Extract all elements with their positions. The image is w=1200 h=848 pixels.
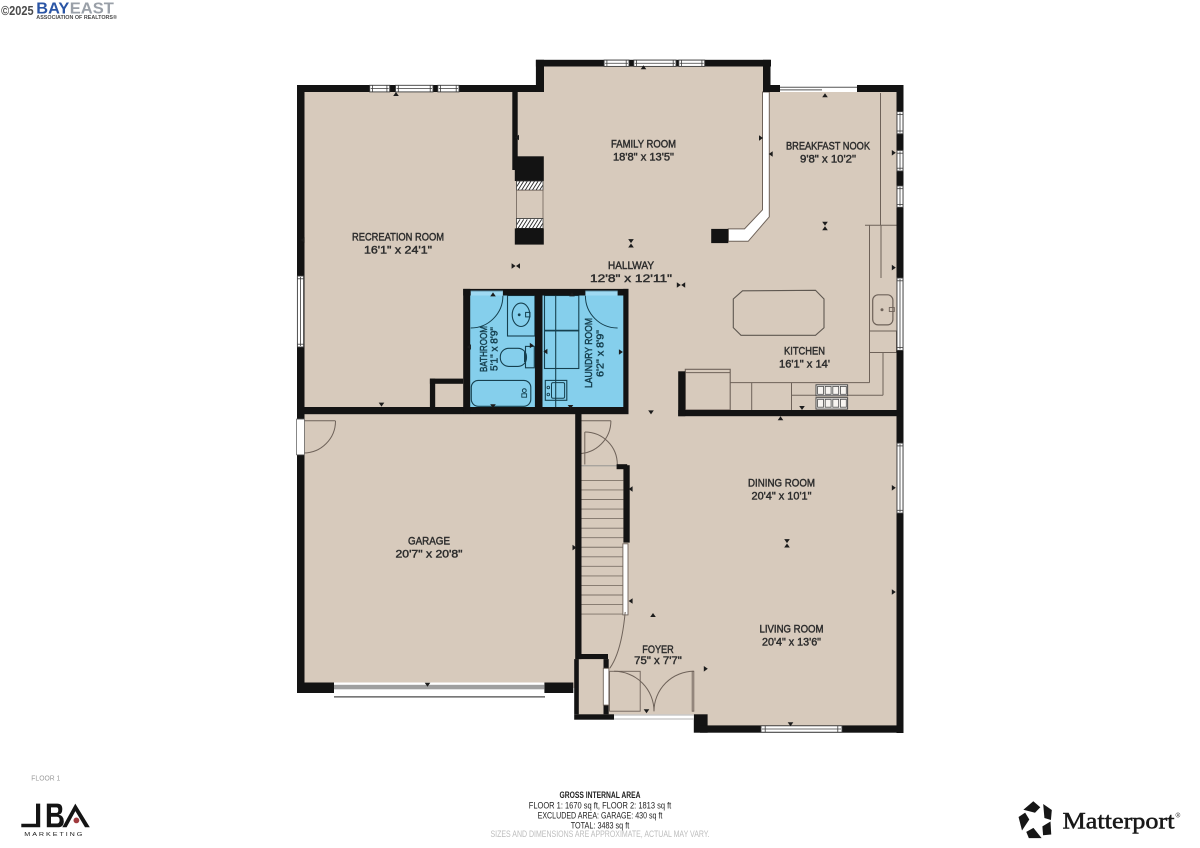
svg-text:5'1" x 8'9": 5'1" x 8'9"	[489, 327, 501, 371]
svg-text:20'4" x 10'1": 20'4" x 10'1"	[752, 491, 812, 503]
svg-text:GROSS INTERNAL AREA: GROSS INTERNAL AREA	[560, 790, 641, 801]
svg-text:16'1" x 24'1": 16'1" x 24'1"	[364, 245, 432, 257]
svg-text:LAUNDRY ROOM: LAUNDRY ROOM	[583, 318, 595, 388]
svg-text:12'8" x 12'11": 12'8" x 12'11"	[590, 273, 672, 285]
svg-text:RECREATION ROOM: RECREATION ROOM	[352, 232, 444, 244]
svg-text:75" x 7'7": 75" x 7'7"	[634, 655, 682, 667]
svg-text:KITCHEN: KITCHEN	[784, 346, 825, 358]
svg-text:MARKETING: MARKETING	[24, 832, 84, 838]
svg-text:20'7" x 20'8": 20'7" x 20'8"	[396, 549, 463, 561]
svg-text:HALLWAY: HALLWAY	[608, 260, 655, 272]
svg-text:LIVING ROOM: LIVING ROOM	[760, 624, 824, 636]
svg-text:16'1" x 14': 16'1" x 14'	[779, 359, 830, 371]
svg-text:FAMILY ROOM: FAMILY ROOM	[611, 139, 676, 151]
svg-text:GARAGE: GARAGE	[408, 536, 450, 548]
svg-text:6'2" x 8'9": 6'2" x 8'9"	[594, 330, 606, 377]
svg-text:9'8" x 10'2": 9'8" x 10'2"	[800, 154, 856, 166]
svg-text:ASSOCIATION OF REALTORS®: ASSOCIATION OF REALTORS®	[36, 14, 117, 21]
svg-text:®: ®	[1176, 812, 1181, 820]
svg-text:FLOOR 1: FLOOR 1	[31, 773, 60, 782]
svg-text:©2025: ©2025	[1, 4, 34, 18]
svg-text:20'4" x 13'6": 20'4" x 13'6"	[762, 637, 821, 649]
svg-text:BREAKFAST NOOK: BREAKFAST NOOK	[786, 141, 871, 153]
svg-text:Matterport: Matterport	[1063, 808, 1176, 833]
svg-text:18'8" x 13'5": 18'8" x 13'5"	[613, 152, 674, 164]
svg-text:DINING ROOM: DINING ROOM	[748, 478, 815, 490]
svg-text:SIZES AND DIMENSIONS ARE APPRO: SIZES AND DIMENSIONS ARE APPROXIMATE, AC…	[491, 829, 710, 839]
